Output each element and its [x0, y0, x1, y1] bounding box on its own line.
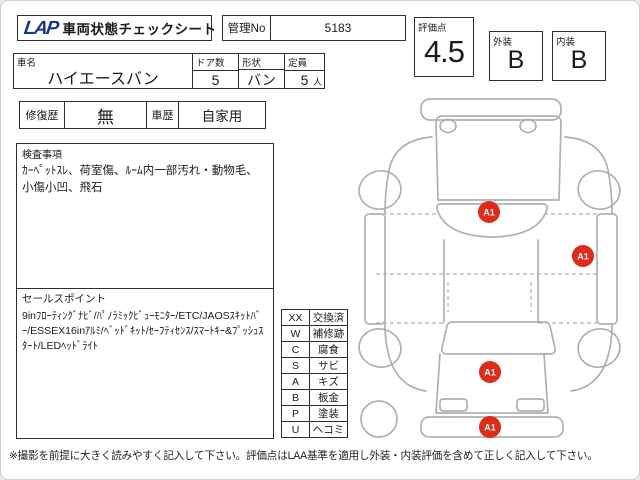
svg-text:A1: A1: [484, 423, 496, 433]
rear-right-fender: [571, 324, 612, 391]
car-top-view-diagram: A1A1A1A1: [356, 86, 640, 446]
legend-label: 板金: [310, 390, 348, 406]
exterior-grade-box: 外装 B: [489, 31, 543, 81]
legend-row: C腐食: [282, 342, 348, 358]
repair-history-value: 無: [65, 102, 147, 128]
history-row: 修復歴 無 車歴 自家用: [19, 101, 266, 129]
spare-tire: [361, 401, 397, 437]
capacity-unit: 人: [313, 75, 322, 88]
sheet-title-box: LAP 車両状態チェックシート: [17, 15, 212, 41]
sales-points-box: セールスポイント 9inﾌﾛｰﾃｨﾝｸﾞﾅﾋﾞ/ﾊﾟﾉﾗﾐｯｸﾋﾞｭｰﾓﾆﾀｰ/…: [16, 288, 274, 439]
legend-code: A: [282, 374, 310, 390]
legend-row: XX交換済: [282, 310, 348, 326]
front-left-fender: [385, 137, 432, 214]
damage-marker-rear-bumper: A1: [479, 416, 501, 438]
manage-no-value: 5183: [271, 16, 405, 40]
left-tail-light: [440, 399, 467, 411]
legend-label: 補修跡: [310, 326, 348, 342]
legend-code: P: [282, 406, 310, 422]
legend-code: W: [282, 326, 310, 342]
manage-no-box: 管理No 5183: [222, 15, 406, 41]
svg-text:A1: A1: [577, 252, 589, 262]
capacity-value: 5: [301, 72, 309, 88]
rear-right-wheel: [574, 324, 624, 371]
left-rocker-panel: [365, 214, 385, 324]
panel-fold-lines: [376, 214, 597, 323]
right-headlight: [520, 120, 536, 133]
damage-marker-rear-door: A1: [479, 361, 501, 383]
car-outline: [356, 99, 624, 437]
legend-code: C: [282, 342, 310, 358]
legend-code: B: [282, 390, 310, 406]
legend-label: 腐食: [310, 342, 348, 358]
legend-code: U: [282, 422, 310, 438]
legend-row: W補修跡: [282, 326, 348, 342]
front-left-wheel: [356, 166, 405, 213]
interior-grade-box: 内装 B: [552, 31, 606, 81]
doors-label: ドア数: [193, 54, 238, 71]
shape-label: 形状: [239, 54, 284, 70]
rear-left-wheel: [356, 324, 405, 371]
sales-points-text: 9inﾌﾛｰﾃｨﾝｸﾞﾅﾋﾞ/ﾊﾟﾉﾗﾐｯｸﾋﾞｭｰﾓﾆﾀｰ/ETC/JAOSｽ…: [22, 309, 268, 355]
legend-code: XX: [282, 310, 310, 326]
interior-grade-value: B: [553, 46, 605, 75]
shape-column: 形状 バン: [239, 54, 285, 88]
repair-history-label: 修復歴: [20, 102, 65, 128]
damage-code-legend: XX交換済W補修跡C腐食SサビAキズB板金P塗装Uヘコミ: [281, 309, 348, 438]
legend-label: キズ: [310, 374, 348, 390]
legend-label: 交換済: [310, 310, 348, 326]
svg-text:A1: A1: [484, 368, 496, 378]
left-headlight: [440, 120, 456, 133]
evaluation-score-value: 4.5: [415, 34, 473, 70]
sales-points-label: セールスポイント: [22, 291, 268, 306]
car-history-label: 車歴: [147, 102, 179, 128]
front-right-fender: [565, 137, 612, 214]
exterior-grade-value: B: [490, 46, 542, 75]
inspection-box: 検査事項 ｶｰﾍﾟｯﾄｽﾚ、荷室傷、ﾙｰﾑ内一部汚れ・動物毛、小傷小凹、飛石: [16, 143, 274, 289]
right-tail-light: [517, 399, 544, 411]
damage-marker-right-side-panel: A1: [572, 245, 594, 267]
footer-note: ※撮影を前提に大きく読みやすく記入して下さい。評価点はLAA基準を適用し外装・内…: [9, 448, 639, 463]
manage-no-label: 管理No: [223, 16, 271, 40]
lap-logo: LAP: [23, 19, 59, 38]
vehicle-name-value: ハイエースバン: [14, 65, 192, 89]
legend-row: Uヘコミ: [282, 422, 348, 438]
legend-row: Sサビ: [282, 358, 348, 374]
inspection-label: 検査事項: [22, 146, 268, 161]
legend-code: S: [282, 358, 310, 374]
legend-row: Aキズ: [282, 374, 348, 390]
front-right-wheel: [574, 166, 624, 213]
capacity-column: 定員 5 人: [285, 54, 324, 88]
shape-value: バン: [239, 70, 284, 90]
right-rocker-panel: [597, 214, 617, 324]
vehicle-check-sheet: LAP 車両状態チェックシート 管理No 5183 評価点 4.5 外装 B 内…: [0, 0, 640, 480]
inspection-text: ｶｰﾍﾟｯﾄｽﾚ、荷室傷、ﾙｰﾑ内一部汚れ・動物毛、小傷小凹、飛石: [22, 163, 268, 196]
doors-column: ドア数 5: [193, 54, 239, 88]
vehicle-info-table: 車名 ハイエースバン ドア数 5 形状 バン 定員 5 人: [13, 53, 325, 89]
evaluation-score-box: 評価点 4.5: [414, 17, 474, 77]
damage-marker-windshield: A1: [478, 201, 500, 223]
doors-value: 5: [193, 71, 238, 88]
legend-row: B板金: [282, 390, 348, 406]
sheet-title: 車両状態チェックシート: [63, 18, 217, 38]
vehicle-name-cell: 車名 ハイエースバン: [14, 54, 193, 88]
rear-window: [442, 322, 555, 354]
capacity-value-cell: 5 人: [285, 71, 324, 88]
legend-label: ヘコミ: [310, 422, 348, 438]
evaluation-score-label: 評価点: [418, 20, 447, 34]
legend-label: サビ: [310, 358, 348, 374]
car-history-value: 自家用: [179, 102, 265, 128]
rear-left-fender: [385, 324, 426, 391]
legend-row: P塗装: [282, 406, 348, 422]
legend-label: 塗装: [310, 406, 348, 422]
svg-text:A1: A1: [483, 208, 495, 218]
capacity-label: 定員: [285, 54, 324, 71]
